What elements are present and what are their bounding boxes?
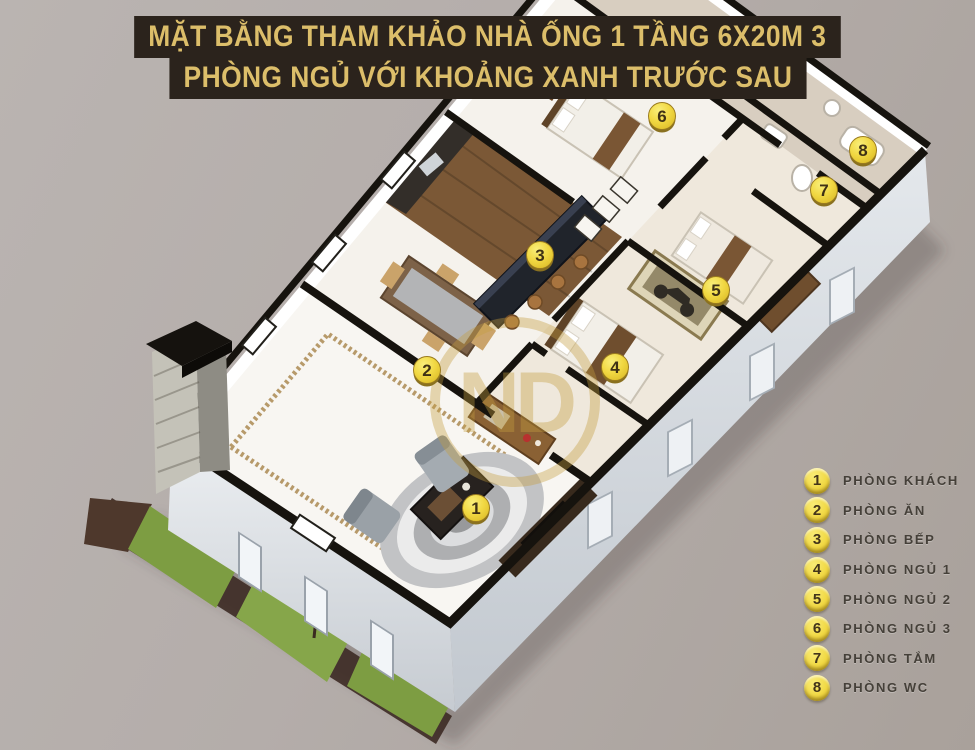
- legend-number-badge: 7: [804, 645, 830, 671]
- room-marker-5: 5: [703, 277, 730, 307]
- legend-item-phong-bep: 3 PHÒNG BẾP: [804, 525, 959, 555]
- legend-item-phong-ngu-2: 5 PHÒNG NGỦ 2: [804, 584, 959, 614]
- legend-item-phong-khach: 1 PHÒNG KHÁCH: [804, 466, 959, 496]
- chimney: [146, 321, 232, 494]
- legend-label: PHÒNG NGỦ 1: [843, 562, 952, 577]
- floorplan-infographic: ND 1 2 3 4 5: [0, 0, 975, 750]
- title-line-1: MẶT BẰNG THAM KHẢO NHÀ ỐNG 1 TẦNG 6X20M …: [134, 16, 840, 58]
- legend-item-phong-tam: 7 PHÒNG TẮM: [804, 644, 959, 674]
- legend-label: PHÒNG NGỦ 3: [843, 621, 952, 636]
- room-marker-4: 4: [602, 354, 629, 384]
- room-marker-1: 1: [463, 495, 490, 525]
- svg-text:3: 3: [535, 246, 544, 265]
- legend-label: PHÒNG BẾP: [843, 532, 935, 547]
- watermark-text: ND: [458, 355, 574, 451]
- legend-item-phong-ngu-1: 4 PHÒNG NGỦ 1: [804, 555, 959, 585]
- svg-text:2: 2: [422, 361, 431, 380]
- legend-number-badge: 1: [804, 468, 830, 494]
- legend-number-badge: 8: [804, 675, 830, 701]
- legend-item-phong-ngu-3: 6 PHÒNG NGỦ 3: [804, 614, 959, 644]
- legend-number-badge: 2: [804, 497, 830, 523]
- legend-label: PHÒNG WC: [843, 680, 929, 695]
- legend-number-badge: 4: [804, 557, 830, 583]
- legend-item-phong-an: 2 PHÒNG ĂN: [804, 496, 959, 526]
- svg-text:5: 5: [711, 281, 720, 300]
- room-marker-7: 7: [811, 177, 838, 207]
- room-marker-6: 6: [649, 103, 676, 133]
- legend-item-phong-wc: 8 PHÒNG WC: [804, 673, 959, 703]
- legend-label: PHÒNG ĂN: [843, 503, 926, 518]
- legend-label: PHÒNG KHÁCH: [843, 473, 959, 488]
- title-banner: MẶT BẰNG THAM KHẢO NHÀ ỐNG 1 TẦNG 6X20M …: [0, 16, 975, 99]
- room-legend: 1 PHÒNG KHÁCH 2 PHÒNG ĂN 3 PHÒNG BẾP 4 P…: [804, 466, 959, 703]
- svg-text:6: 6: [657, 107, 666, 126]
- room-marker-2: 2: [414, 357, 441, 387]
- svg-text:8: 8: [858, 141, 867, 160]
- legend-label: PHÒNG TẮM: [843, 651, 937, 666]
- legend-number-badge: 6: [804, 616, 830, 642]
- title-line-2: PHÒNG NGỦ VỚI KHOẢNG XANH TRƯỚC SAU: [169, 57, 806, 99]
- legend-label: PHÒNG NGỦ 2: [843, 592, 952, 607]
- legend-number-badge: 5: [804, 586, 830, 612]
- svg-text:1: 1: [471, 499, 480, 518]
- room-marker-8: 8: [850, 137, 877, 167]
- svg-text:7: 7: [819, 181, 828, 200]
- room-marker-3: 3: [527, 242, 554, 272]
- svg-text:4: 4: [610, 358, 620, 377]
- legend-number-badge: 3: [804, 527, 830, 553]
